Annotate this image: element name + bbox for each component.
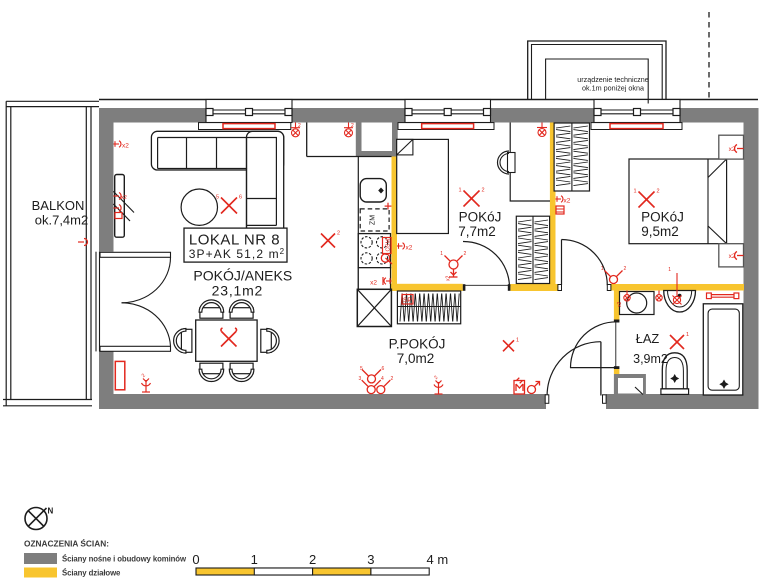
svg-text:1: 1 (601, 266, 604, 272)
svg-text:2: 2 (464, 251, 467, 257)
svg-text:2: 2 (351, 123, 354, 129)
svg-text:3: 3 (367, 552, 374, 567)
svg-text:3P+AK 51,2 m2: 3P+AK 51,2 m2 (189, 247, 285, 261)
svg-text:ok.7,4m2: ok.7,4m2 (35, 213, 88, 228)
svg-text:9,5m2: 9,5m2 (641, 224, 679, 239)
svg-text:2: 2 (391, 376, 394, 382)
svg-text:OZNACZENIA ŚCIAN:: OZNACZENIA ŚCIAN: (24, 538, 109, 549)
svg-text:6: 6 (382, 366, 385, 372)
svg-text:7,0m2: 7,0m2 (397, 351, 435, 366)
svg-text:x2: x2 (617, 302, 623, 308)
svg-text:x2: x2 (564, 198, 571, 205)
svg-text:BALKON: BALKON (32, 198, 85, 213)
svg-text:x2: x2 (121, 195, 127, 201)
svg-text:2: 2 (298, 123, 301, 129)
svg-text:6: 6 (239, 195, 242, 201)
svg-text:ZM: ZM (370, 215, 377, 225)
svg-text:1: 1 (633, 189, 636, 195)
svg-text:4: 4 (381, 376, 384, 382)
svg-text:SP: SP (403, 297, 412, 304)
svg-text:N: N (48, 507, 54, 516)
svg-text:OSM: OSM (386, 239, 392, 252)
svg-text:x2: x2 (446, 276, 452, 282)
svg-text:x2: x2 (729, 146, 736, 153)
svg-text:POKÓJ/ANEKS: POKÓJ/ANEKS (193, 268, 292, 284)
svg-text:1: 1 (251, 552, 258, 567)
svg-text:1: 1 (668, 267, 671, 273)
svg-text:Ściany nośne i obudowy kominów: Ściany nośne i obudowy kominów (62, 555, 187, 564)
svg-text:2: 2 (657, 189, 660, 195)
svg-text:0: 0 (192, 552, 199, 567)
svg-text:2: 2 (624, 266, 627, 272)
svg-text:4 m: 4 m (427, 552, 449, 567)
svg-text:1: 1 (686, 332, 689, 338)
svg-text:1: 1 (440, 251, 443, 257)
svg-text:ok.1m poniżej okna: ok.1m poniżej okna (582, 84, 644, 93)
svg-text:23,1m2: 23,1m2 (212, 283, 264, 299)
svg-text:POKóJ: POKóJ (459, 210, 502, 225)
svg-text:x2: x2 (729, 253, 736, 260)
svg-text:1: 1 (516, 337, 519, 343)
svg-text:LOKAL NR 8: LOKAL NR 8 (189, 232, 280, 249)
svg-text:2: 2 (309, 552, 316, 567)
svg-text:2: 2 (482, 188, 485, 194)
svg-text:POKóJ: POKóJ (641, 210, 684, 225)
svg-text:x2: x2 (122, 143, 129, 150)
svg-text:x2: x2 (370, 280, 377, 287)
svg-text:Ściany działowe: Ściany działowe (62, 569, 121, 578)
svg-text:7,7m2: 7,7m2 (458, 224, 496, 239)
svg-text:3,9m2: 3,9m2 (633, 352, 668, 366)
svg-text:x2: x2 (406, 245, 413, 252)
svg-text:2: 2 (337, 231, 340, 237)
svg-text:5: 5 (216, 195, 219, 201)
svg-text:P.POKÓJ: P.POKÓJ (389, 337, 446, 352)
svg-text:3: 3 (359, 376, 362, 382)
svg-text:5: 5 (360, 366, 363, 372)
svg-text:1: 1 (458, 188, 461, 194)
svg-text:ŁAZ: ŁAZ (636, 331, 660, 346)
